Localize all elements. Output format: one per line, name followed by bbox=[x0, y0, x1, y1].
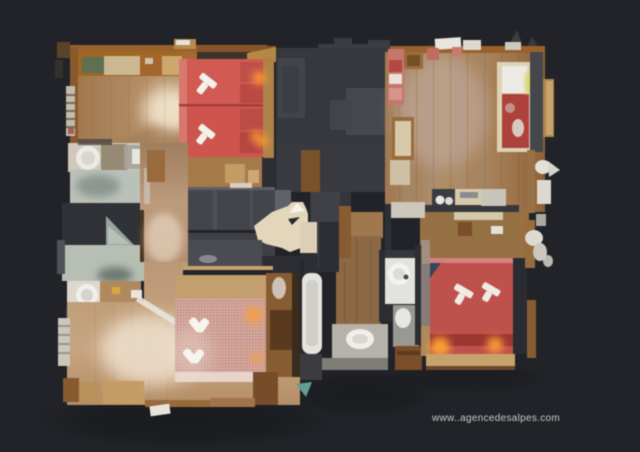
svg-text:www..agencedesalpes.com: www..agencedesalpes.com bbox=[431, 413, 560, 424]
